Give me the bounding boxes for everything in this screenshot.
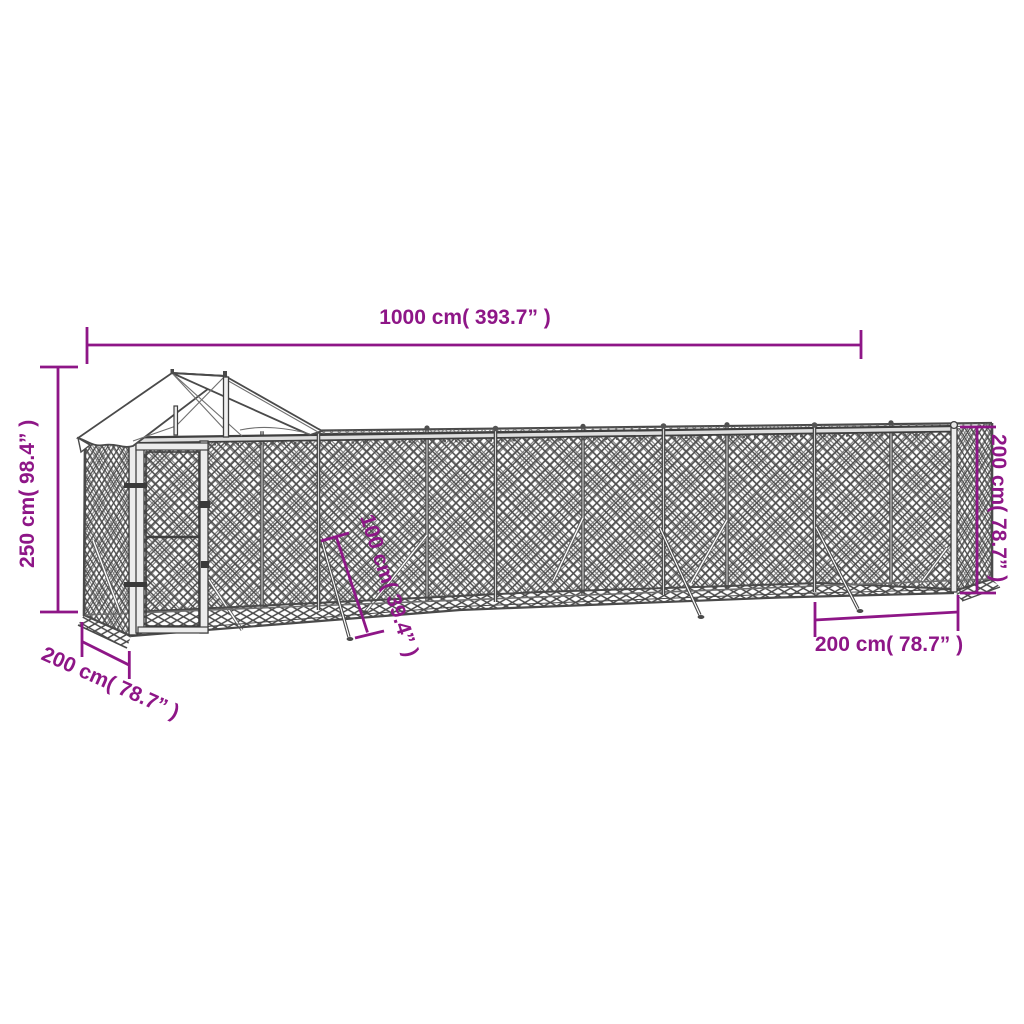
svg-text:200 cm( 78.7” ): 200 cm( 78.7” ) xyxy=(987,434,1010,582)
svg-text:250 cm( 98.4” ): 250 cm( 98.4” ) xyxy=(16,420,39,568)
svg-text:200 cm( 78.7” ): 200 cm( 78.7” ) xyxy=(815,633,963,656)
svg-text:1000 cm( 393.7” ): 1000 cm( 393.7” ) xyxy=(379,306,551,329)
